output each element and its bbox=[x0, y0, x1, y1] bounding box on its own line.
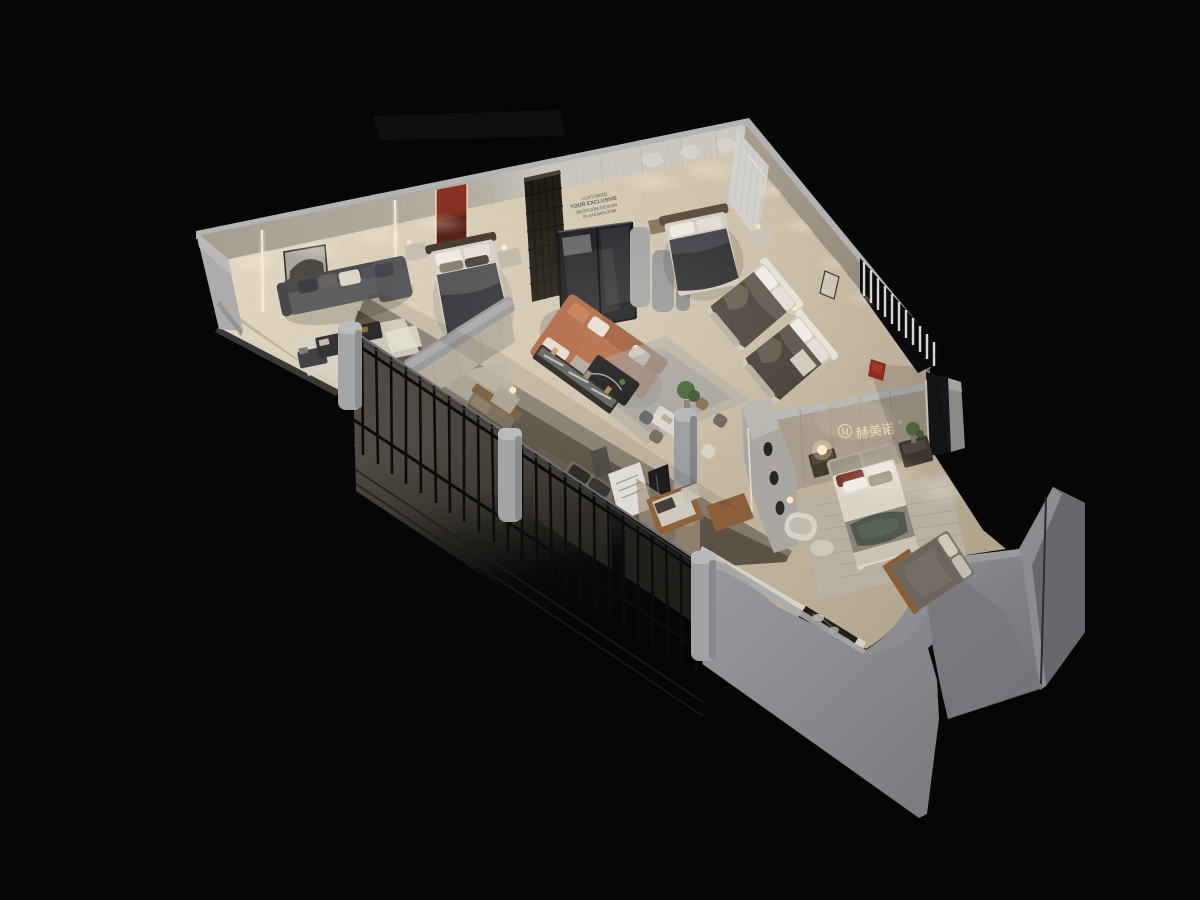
svg-text:M: M bbox=[841, 427, 849, 437]
